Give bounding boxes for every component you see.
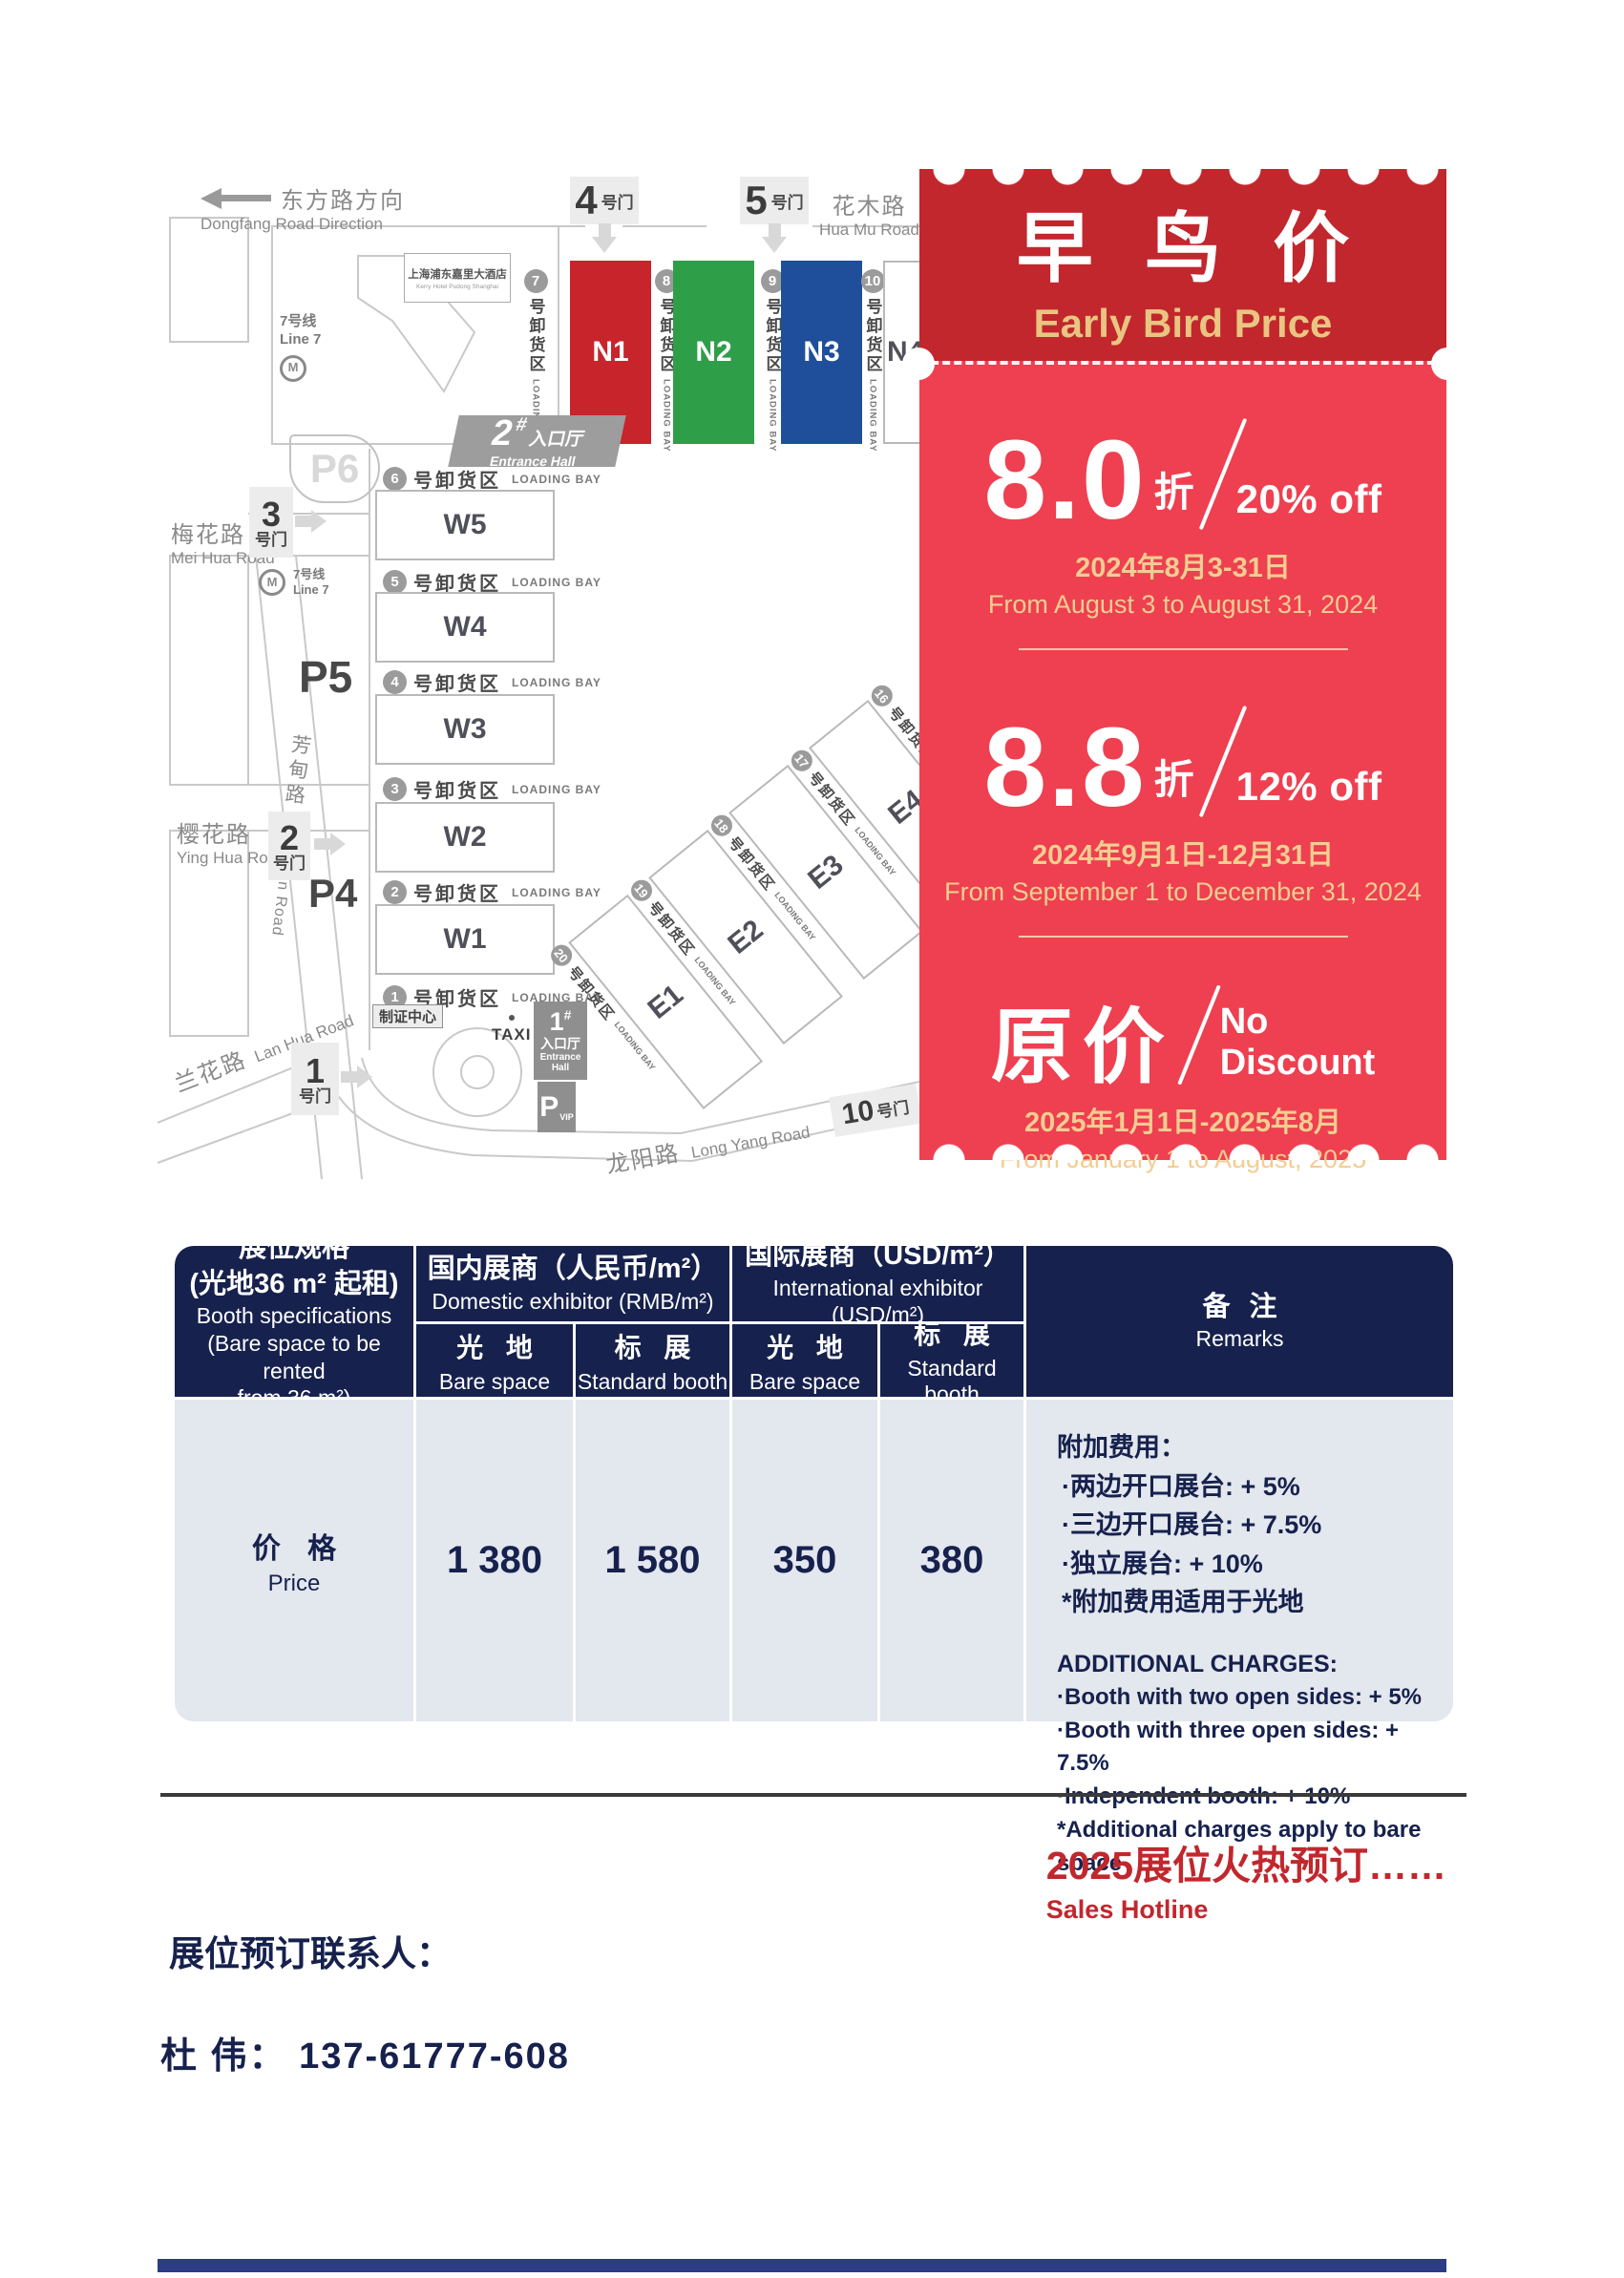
tier1-zhe: 折 [1154, 460, 1194, 518]
venue-map: 东方路方向 Dongfang Road Direction 花木路 Hua Mu… [158, 162, 950, 1179]
remark-line: ADDITIONAL CHARGES: [1057, 1647, 1444, 1681]
gate-2-number: 2 [280, 821, 299, 855]
loading-bay-6: 6 号卸货区 LOADING BAY [383, 465, 601, 493]
tier2-date-en: From September 1 to December 31, 2024 [944, 877, 1422, 907]
gate-suffix: 号门 [299, 1088, 331, 1105]
loading-bay-number: 3 [383, 777, 407, 801]
price-zh: 价 格 [243, 1525, 346, 1567]
metro-line7-en: Line 7 [280, 331, 321, 349]
road-dongfang: 东方路方向 Dongfang Road Direction [200, 181, 405, 234]
spec-en2: (Bare space to be rented [175, 1330, 413, 1385]
hotel-name-zh: 上海浦东嘉里大酒店 [408, 266, 507, 282]
parking-vip-sub: VIP [559, 1112, 574, 1122]
gate-suffix: 号门 [273, 855, 306, 872]
tier3-off-line1: No [1220, 1002, 1269, 1042]
parking-p6: P6 [289, 434, 380, 503]
metro-line7-north: 7号线 Line 7 M [280, 313, 321, 382]
gate-1-arrow-icon [341, 1065, 372, 1088]
tier3-discount: 原价 No Discount [991, 981, 1376, 1088]
loading-bay-en: LOADING BAY [512, 576, 601, 589]
loading-bay-en: LOADING BAY [662, 379, 672, 453]
spec-en1: Booth specifications [197, 1302, 392, 1330]
loading-bay-zh: 号卸货区 [413, 668, 501, 696]
table-header-domestic: 国内展商（人民币/m²） Domestic exhibitor (RMB/m²) [416, 1246, 729, 1321]
gate-3-arrow-icon [295, 510, 327, 533]
hall-w1: W1 [375, 904, 555, 975]
gate-2: 2 号门 [268, 812, 310, 880]
coupon-title-en: Early Bird Price [919, 301, 1446, 347]
gate-10-number: 10 [840, 1094, 876, 1131]
gate-suffix: 号门 [771, 189, 804, 213]
value-intl-standard: 380 [920, 1539, 984, 1582]
loading-bay-zh: 号卸货区 [524, 298, 548, 374]
price-domestic-bare: 1 380 [416, 1400, 573, 1721]
entrance-hall-1: 1 # 入口厅 Entrance Hall [534, 1002, 587, 1080]
remark-line: ·Independent booth: + 10% [1057, 1781, 1444, 1814]
tier1-discount: 8.0 折 20% off [984, 414, 1382, 534]
table-header-remarks: 备 注 Remarks [1026, 1246, 1453, 1397]
subheader-intl-bare: 光 地 Bare space [732, 1324, 877, 1397]
hall-n2: N2 [673, 261, 754, 444]
remark-line: ·两边开口展台: + 5% [1057, 1467, 1321, 1507]
tier3-off-line2: Discount [1220, 1043, 1376, 1083]
loading-bay-number: 2 [383, 880, 407, 904]
parking-p4: P4 [308, 871, 357, 917]
metro-line7-en: Line 7 [293, 582, 329, 598]
table-cell-remarks: 附加费用： ·两边开口展台: + 5% ·三边开口展台: + 7.5% ·独立展… [1026, 1400, 1453, 1721]
value-intl-bare: 350 [773, 1539, 837, 1582]
sales-hotline-block: 2025展位火热预订…… Sales Hotline [1046, 1833, 1446, 1925]
price-coupon: 早 鸟 价 Early Bird Price 8.0 折 20% off 202… [919, 169, 1446, 1160]
road-dongfang-zh: 东方路方向 [281, 181, 405, 215]
remarks-zh: 备 注 [1196, 1290, 1282, 1326]
bottom-accent-bar [158, 2259, 1446, 2272]
loading-bay-zh: 号卸货区 [413, 878, 501, 906]
spec-zh1: 展位规格 [239, 1231, 349, 1267]
gate-2-arrow-icon [314, 833, 346, 855]
tier3-dates: 2025年1月1日-2025年8月 From January 1 to Augu… [1000, 1088, 1366, 1174]
price-intl-bare: 350 [732, 1400, 877, 1721]
value-domestic-bare: 1 380 [447, 1539, 542, 1582]
parking-p5: P5 [299, 651, 352, 703]
subheader-domestic-standard: 标 展 Standard booth [576, 1324, 729, 1397]
loading-bay-zh: 号卸货区 [861, 298, 885, 374]
table-header-spec: 展位规格 (光地36 m² 起租) Booth specifications (… [175, 1246, 413, 1397]
price-en: Price [268, 1571, 321, 1597]
road-huamu-zh: 花木路 [810, 187, 929, 221]
remark-line: ·Booth with two open sides: + 5% [1057, 1681, 1444, 1715]
gate-1-number: 1 [306, 1054, 325, 1088]
gate-3: 3 号门 [249, 487, 293, 558]
coupon-header: 早 鸟 价 Early Bird Price [919, 169, 1446, 361]
loading-bay-en: LOADING BAY [868, 379, 878, 453]
contact-phone: 杜 伟： 137-61777-608 [160, 2026, 570, 2078]
loading-bay-number: 7 [524, 269, 548, 293]
entrance-zh: 入口厅 [540, 1037, 580, 1051]
remarks-en: Remarks [1195, 1325, 1283, 1353]
entrance-zh: 入口厅 [528, 431, 586, 449]
value-domestic-standard: 1 580 [604, 1539, 700, 1582]
loading-bay-number: 4 [383, 670, 407, 694]
std-en: Standard booth [578, 1369, 728, 1395]
remarks-zh-block: 附加费用： ·两边开口展台: + 5% ·三边开口展台: + 7.5% ·独立展… [1057, 1428, 1321, 1622]
tier3-date-zh: 2025年1月1日-2025年8月 [1000, 1100, 1366, 1140]
price-table: 展位规格 (光地36 m² 起租) Booth specifications (… [175, 1246, 1453, 1721]
loading-bay-3: 3 号卸货区 LOADING BAY [383, 775, 601, 803]
entrance-hash: # [564, 1008, 572, 1023]
coupon-scallop-top [919, 169, 1446, 188]
tier2-discount: 8.8 折 12% off [984, 702, 1382, 821]
table-header-international: 国际展商（USD/m²） International exhibitor (US… [732, 1246, 1023, 1321]
tier3-label: 原价 [991, 1006, 1174, 1088]
loading-bay-en: LOADING BAY [512, 473, 601, 486]
gate-4-number: 4 [575, 178, 597, 223]
loading-bay-2: 2 号卸货区 LOADING BAY [383, 878, 601, 906]
parking-p6-label: P6 [310, 446, 359, 492]
badge-center-label: 制证中心 [372, 1004, 443, 1028]
tier2-zhe: 折 [1154, 748, 1194, 806]
coupon-body: 8.0 折 20% off 2024年8月3-31日 From August 3… [919, 365, 1446, 1141]
price-intl-standard: 380 [880, 1400, 1023, 1721]
remark-line: *附加费用适用于光地 [1057, 1583, 1321, 1622]
tier1-date-zh: 2024年8月3-31日 [988, 545, 1378, 585]
remark-line: ·独立展台: + 10% [1057, 1545, 1321, 1584]
coupon-title-zh: 早 鸟 价 [919, 211, 1446, 287]
tier1-rate: 8.0 [984, 427, 1147, 534]
loading-bay-4: 4 号卸货区 LOADING BAY [383, 668, 601, 696]
taxi-label: TAXI [492, 1025, 531, 1044]
hotline-zh: 2025展位火热预订…… [1046, 1833, 1446, 1890]
loading-bay-zh: 号卸货区 [413, 465, 501, 493]
intl-zh: 国际展商（USD/m²） [745, 1238, 1011, 1275]
road-huamu-en: Hua Mu Road [810, 221, 929, 240]
flyer-page: 东方路方向 Dongfang Road Direction 花木路 Hua Mu… [0, 0, 1624, 2278]
hall-w3: W3 [375, 694, 555, 765]
coupon-scallop-bottom [919, 1141, 1446, 1160]
metro-logo-icon: M [259, 569, 285, 596]
remark-line: ·三边开口展台: + 7.5% [1057, 1506, 1321, 1545]
road-huamu: 花木路 Hua Mu Road [810, 187, 929, 240]
metro-logo-icon: M [280, 355, 306, 382]
slash-icon [1177, 984, 1221, 1085]
remark-line: ·Booth with three open sides: + 7.5% [1057, 1715, 1444, 1782]
hall-w5: W5 [375, 490, 555, 560]
domestic-zh: 国内展商（人民币/m²） [428, 1252, 719, 1288]
tier2-dates: 2024年9月1日-12月31日 From September 1 to Dec… [944, 821, 1422, 907]
table-row-price-label: 价 格 Price [175, 1400, 413, 1721]
hall-w4: W4 [375, 592, 555, 663]
loading-bay-en: LOADING BAY [512, 886, 601, 899]
entrance-hall-2: 2 # 入口厅 Entrance Hall [448, 415, 625, 467]
tier3-off: No Discount [1220, 1002, 1376, 1085]
bare-zh: 光 地 [759, 1327, 851, 1365]
tier1-dates: 2024年8月3-31日 From August 3 to August 31,… [988, 534, 1378, 620]
gate-5-number: 5 [745, 178, 767, 223]
gate-1: 1 号门 [291, 1043, 339, 1115]
subheader-intl-standard: 标 展 Standard booth [880, 1324, 1023, 1397]
parking-vip-p: P [539, 1091, 559, 1124]
loading-bay-zh: 号卸货区 [413, 775, 501, 803]
loading-bay-en: LOADING BAY [512, 676, 601, 689]
loading-bay-number: 6 [383, 467, 407, 491]
gate-5-arrow-icon [762, 223, 787, 253]
contact-label: 展位预订联系人： [169, 1925, 452, 1976]
coupon-divider [1019, 648, 1348, 650]
std-zh: 标 展 [906, 1314, 998, 1352]
tier2-date-zh: 2024年9月1日-12月31日 [944, 833, 1422, 873]
loading-bay-en: LOADING BAY [768, 379, 778, 453]
gate-3-number: 3 [262, 497, 281, 532]
entrance-1-number: 1 [550, 1008, 564, 1035]
bare-en: Bare space [439, 1369, 550, 1395]
price-domestic-standard: 1 580 [576, 1400, 729, 1721]
std-zh: 标 展 [607, 1327, 699, 1365]
hotline-en: Sales Hotline [1046, 1895, 1446, 1925]
parking-vip: P VIP [538, 1082, 576, 1132]
gate-suffix: 号门 [255, 532, 287, 548]
metro-line7-zh: 7号线 [293, 567, 329, 582]
bare-zh: 光 地 [449, 1327, 540, 1365]
gate-4-arrow-icon [592, 223, 617, 253]
hall-n3: N3 [781, 261, 862, 444]
tier1-date-en: From August 3 to August 31, 2024 [988, 590, 1378, 620]
kerry-hotel-label: 上海浦东嘉里大酒店 Kerry Hotel Pudong Shanghai [404, 253, 511, 303]
road-dongfang-en: Dongfang Road Direction [200, 215, 405, 234]
entrance-2-number: 2 [489, 415, 517, 452]
gate-5: 5 号门 [740, 177, 809, 224]
footer-divider [160, 1793, 1466, 1797]
spec-zh2: (光地36 m² 起租) [189, 1267, 398, 1303]
bare-en: Bare space [749, 1369, 860, 1395]
subheader-domestic-bare: 光 地 Bare space [416, 1324, 573, 1397]
entrance-hash: # [515, 415, 529, 434]
loading-bay-number: 10 [861, 269, 885, 293]
gate-suffix: 号门 [875, 1093, 910, 1122]
loading-bay-10: 10 号卸货区 LOADING BAY [859, 269, 886, 453]
domestic-en: Domestic exhibitor (RMB/m²) [432, 1288, 713, 1316]
hotel-name-en: Kerry Hotel Pudong Shanghai [416, 284, 498, 290]
entrance-en: Entrance Hall [538, 1053, 583, 1073]
hall-w2: W2 [375, 802, 555, 873]
coupon-divider [1019, 936, 1348, 938]
taxi-dot-icon [509, 1015, 515, 1021]
tier2-off: 12% off [1236, 764, 1382, 810]
gate-suffix: 号门 [601, 189, 634, 213]
tier2-rate: 8.8 [984, 714, 1147, 821]
west-arrow-icon [200, 188, 271, 209]
tier1-off: 20% off [1236, 476, 1382, 522]
gate-4: 4 号门 [570, 177, 639, 224]
remark-line: 附加费用： [1057, 1428, 1321, 1467]
loading-bay-number: 5 [383, 570, 407, 594]
metro-line7-south: M 7号线 Line 7 [259, 567, 329, 597]
metro-line7-zh: 7号线 [280, 313, 321, 331]
loading-bay-en: LOADING BAY [512, 783, 601, 796]
